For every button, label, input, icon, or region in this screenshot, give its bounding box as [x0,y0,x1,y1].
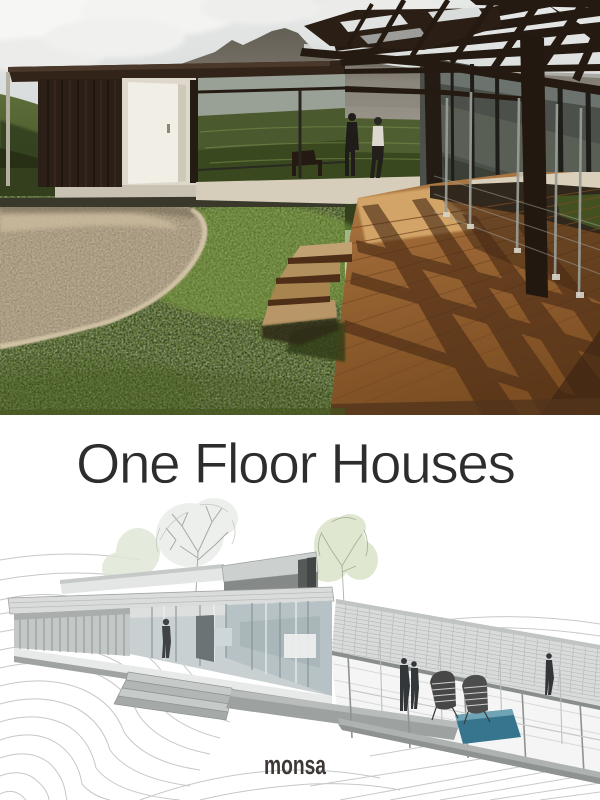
svg-text:monsa: monsa [264,750,327,780]
svg-text:One Floor Houses: One Floor Houses [76,432,516,496]
